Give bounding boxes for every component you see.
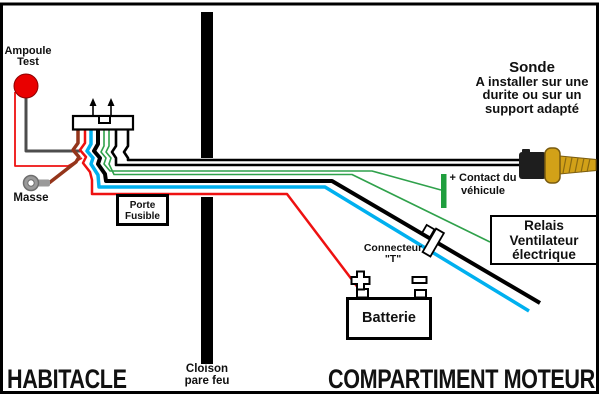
test-lamp-bulb	[14, 74, 38, 98]
firewall-bar-bottom	[201, 197, 213, 364]
test-lamp-label: Ampoule Test	[0, 46, 56, 68]
battery-minus-icon	[413, 277, 427, 283]
sensor-label-line2: A installer sur une	[464, 75, 600, 89]
firewall-label: Cloison pare feu	[176, 364, 238, 387]
firewall-label-line2: pare feu	[176, 376, 238, 388]
ignition-contact-label: + Contact du véhicule	[447, 172, 519, 198]
ground-brown-wire	[49, 129, 79, 183]
t-connector-label: Connecteur "T"	[355, 243, 431, 265]
relay-label-line1: Relais	[492, 219, 596, 234]
sensor-connector	[519, 152, 546, 179]
zone-label-engine-bay: COMPARTIMENT MOTEUR	[328, 364, 595, 395]
sensor-cable-upper	[124, 129, 521, 160]
wiring-diagram: Ampoule Test Masse Porte Fusible Sonde A…	[0, 0, 600, 400]
ignition-contact-label-line2: véhicule	[447, 185, 519, 198]
sensor-label-title: Sonde	[464, 61, 600, 75]
ignition-contact-label-line1: + Contact du	[447, 172, 519, 185]
test-lamp-label-line2: Test	[0, 57, 56, 68]
sensor-label-line4: support adapté	[464, 102, 600, 116]
up-arrow-left-icon	[90, 98, 97, 106]
fuse-holder-label-line1: Porte	[119, 200, 166, 211]
fuse-holder-box: Porte Fusible	[116, 194, 169, 226]
ground-ring-hole	[28, 180, 34, 186]
t-connector-label-line2: "T"	[355, 254, 431, 265]
firewall-bar-top	[201, 12, 213, 158]
relay-box: Relais Ventilateur électrique	[490, 215, 598, 265]
connector-block-notch	[99, 116, 110, 123]
sensor-label: Sonde A installer sur une durite ou sur …	[464, 61, 600, 115]
battery-box: Batterie	[346, 297, 432, 340]
zone-label-cabin: HABITACLE	[7, 364, 127, 395]
sensor-flange	[545, 148, 560, 183]
relay-label-line3: électrique	[492, 248, 596, 263]
contact-plus-bar	[441, 174, 447, 208]
sensor-label-line3: durite ou sur un	[464, 88, 600, 102]
battery-plus-icon	[352, 272, 370, 290]
firewall-label-line1: Cloison	[176, 364, 238, 376]
relay-label-line2: Ventilateur	[492, 234, 596, 249]
ground-label: Masse	[6, 192, 56, 204]
fuse-holder-label-line2: Fusible	[119, 211, 166, 222]
up-arrow-right-icon	[108, 98, 115, 106]
